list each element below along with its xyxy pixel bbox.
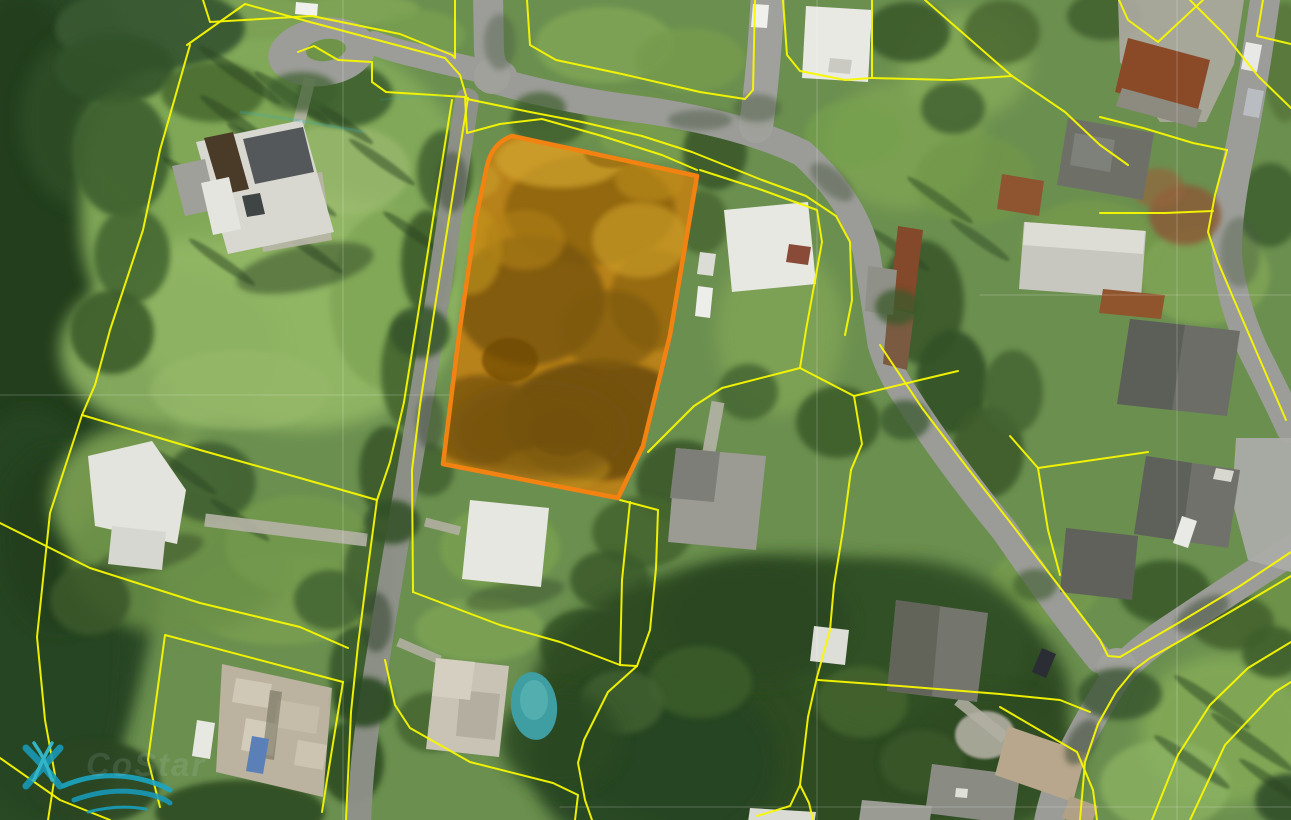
parcel-ground-texture bbox=[450, 380, 630, 480]
vegetation-patch bbox=[921, 82, 985, 134]
vegetation-patch bbox=[964, 0, 1040, 64]
roof-detail bbox=[786, 244, 811, 265]
tree-canopy bbox=[484, 14, 516, 70]
car bbox=[695, 286, 713, 318]
roof-detail bbox=[887, 600, 940, 696]
ruins-wall bbox=[294, 740, 327, 770]
tree-canopy bbox=[1220, 217, 1260, 287]
parcel-ground-texture bbox=[560, 290, 660, 370]
roof-detail bbox=[108, 526, 166, 570]
vegetation-patch bbox=[55, 33, 175, 103]
vegetation-patch bbox=[718, 364, 778, 420]
rust-roof bbox=[997, 174, 1044, 216]
vegetation-patch bbox=[648, 646, 752, 718]
vegetation-patch bbox=[150, 350, 330, 430]
shed-roof bbox=[697, 252, 716, 276]
tree-canopy bbox=[668, 110, 732, 130]
vegetation-patch bbox=[74, 93, 170, 217]
swimming-pool bbox=[520, 680, 548, 720]
vegetation-patch bbox=[796, 386, 880, 458]
shed-roof bbox=[1060, 528, 1138, 600]
vegetation-patch bbox=[635, 28, 745, 92]
vegetation-patch bbox=[983, 350, 1043, 434]
white-house-roof bbox=[462, 500, 549, 587]
tree-canopy bbox=[880, 400, 930, 440]
aerial-map[interactable]: CoStar bbox=[0, 0, 1291, 820]
car bbox=[295, 2, 318, 16]
vegetation-patch bbox=[94, 207, 170, 303]
watermark-text: CoStar bbox=[86, 746, 206, 783]
roof-detail bbox=[955, 788, 968, 798]
tree-canopy bbox=[875, 289, 919, 325]
tree-canopy bbox=[390, 306, 450, 358]
tree-canopy bbox=[360, 592, 392, 652]
tree-canopy bbox=[266, 72, 338, 112]
roof-detail bbox=[432, 658, 475, 700]
roof-detail bbox=[828, 58, 852, 74]
vegetation-patch bbox=[70, 290, 154, 374]
vegetation-patch bbox=[294, 570, 366, 630]
parcel-ground-texture bbox=[482, 338, 538, 382]
roof-detail bbox=[670, 448, 720, 502]
parcel-ground-texture bbox=[592, 202, 688, 278]
parcel-ground-texture bbox=[485, 210, 565, 270]
screenshot-root: CoStar bbox=[0, 0, 1291, 820]
